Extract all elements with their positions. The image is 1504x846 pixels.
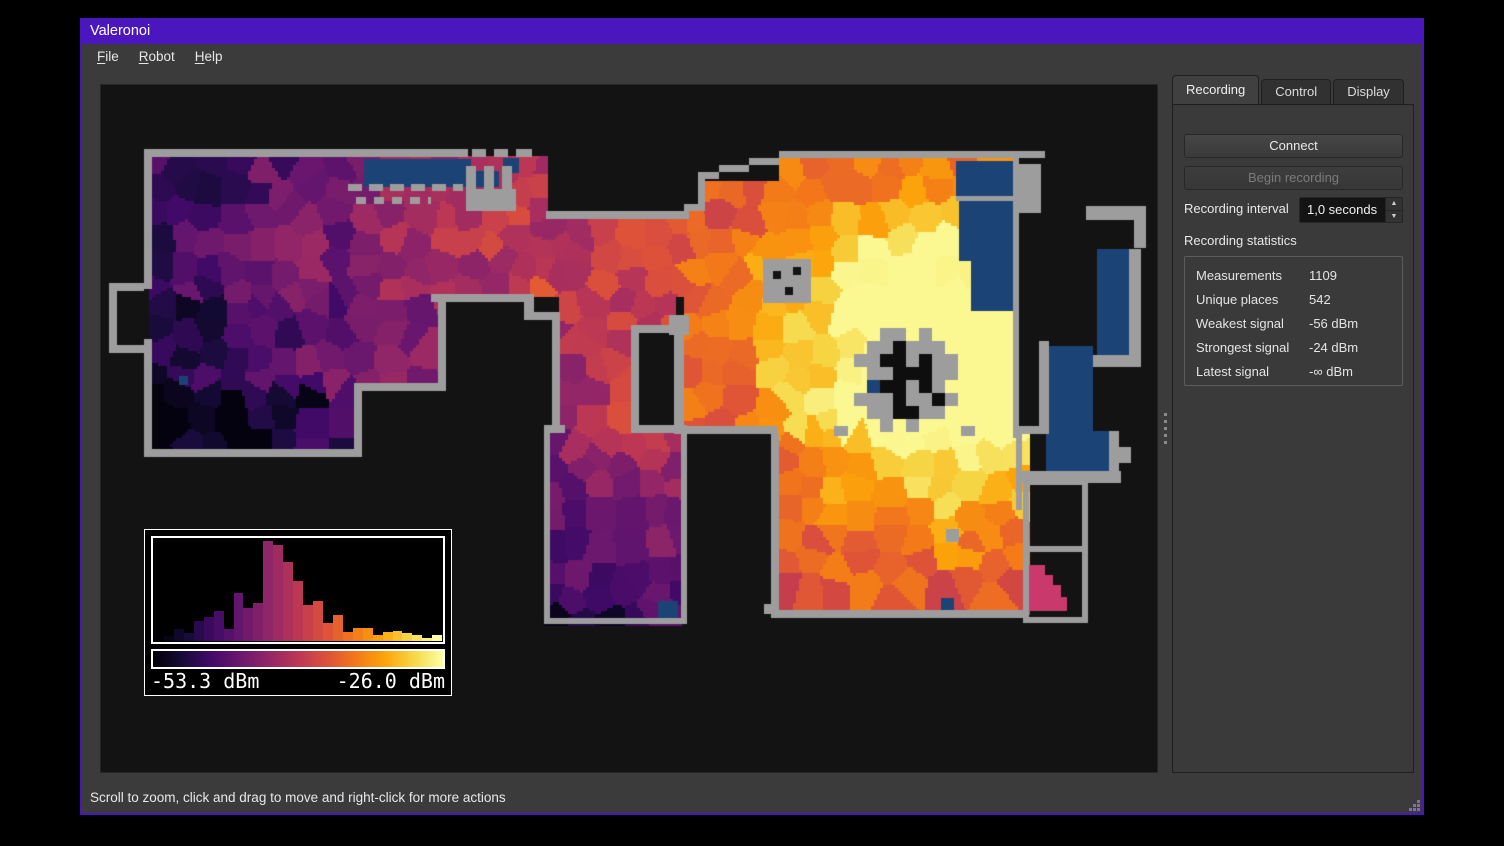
histogram-bar [353,628,363,641]
histogram-bar [303,605,313,641]
status-bar-text: Scroll to zoom, click and drag to move a… [90,790,506,805]
stat-value: -56 dBm [1309,316,1358,331]
histogram-bar [204,617,214,641]
stat-row: Unique places542 [1196,287,1402,311]
recording-interval-value: 1,0 seconds [1300,198,1385,222]
histogram-bar [243,608,253,641]
legend-min-label: -53.3 dBm [151,669,259,693]
stat-label: Measurements [1196,268,1309,283]
tab-recording[interactable]: Recording [1172,75,1259,104]
histogram-bar [422,638,432,641]
stat-row: Measurements1109 [1196,263,1402,287]
begin-recording-button[interactable]: Begin recording [1184,166,1403,190]
histogram-bar [283,562,293,641]
tab-control[interactable]: Control [1261,79,1331,104]
stat-value: 542 [1309,292,1331,307]
histogram-bar [273,545,283,641]
histogram-bar [293,581,303,641]
histogram-bar [184,633,194,641]
histogram-bar [333,615,343,641]
menu-item-help[interactable]: Help [186,46,232,67]
spin-buttons: ▲ ▼ [1385,198,1402,222]
histogram-bar [154,631,164,641]
tab-display[interactable]: Display [1333,79,1404,104]
recording-interval-row: Recording interval 1,0 seconds ▲ ▼ [1184,197,1403,223]
panel-tab-bar: RecordingControlDisplay [1172,79,1406,104]
legend-max-label: -26.0 dBm [337,669,445,693]
histogram-bar [393,631,403,641]
stat-row: Latest signal-∞ dBm [1196,359,1402,383]
spin-down-button[interactable]: ▼ [1386,211,1402,223]
stat-label: Latest signal [1196,364,1309,379]
status-bar: Scroll to zoom, click and drag to move a… [82,786,1422,811]
histogram-bar [343,632,353,641]
histogram-bar [402,633,412,641]
app-window: Valeronoi FileRobotHelp -53.3 dBm -26.0 … [80,18,1424,815]
menu-item-file[interactable]: File [88,46,128,67]
histogram-bar [373,635,383,641]
recording-statistics-frame: Measurements1109Unique places542Weakest … [1184,256,1403,386]
menu-bar: FileRobotHelp [82,44,1422,69]
stat-label: Unique places [1196,292,1309,307]
menu-item-robot[interactable]: Robot [130,46,184,67]
colormap-gradient-frame [151,649,445,669]
splitter-handle[interactable] [1158,84,1172,773]
recording-interval-label: Recording interval [1184,201,1289,216]
resize-grip-icon[interactable] [1406,797,1420,811]
recording-statistics-title: Recording statistics [1184,233,1297,248]
spin-up-button[interactable]: ▲ [1386,198,1402,211]
colormap-gradient [153,651,443,667]
histogram-bar [313,601,323,641]
stat-row: Strongest signal-24 dBm [1196,335,1402,359]
legend-labels: -53.3 dBm -26.0 dBm [151,669,445,693]
histogram-bar [323,623,333,641]
signal-histogram [151,536,445,644]
histogram-bar [412,635,422,641]
histogram-bar [363,628,373,641]
window-title: Valeronoi [90,23,150,39]
recording-interval-spinbox[interactable]: 1,0 seconds ▲ ▼ [1299,197,1403,223]
stat-value: -24 dBm [1309,340,1358,355]
stat-value: 1109 [1309,268,1337,283]
stat-label: Strongest signal [1196,340,1309,355]
histogram-bar [432,635,442,641]
stat-row: Weakest signal-56 dBm [1196,311,1402,335]
histogram-bar [214,611,224,641]
histogram-bar [253,603,263,641]
histogram-bar [194,621,204,641]
recording-panel: Connect Begin recording Recording interv… [1172,104,1414,773]
histogram-bar [174,629,184,641]
signal-legend: -53.3 dBm -26.0 dBm [144,529,452,696]
histogram-bar [224,629,234,641]
histogram-bar [383,632,393,641]
connect-button[interactable]: Connect [1184,134,1403,158]
histogram-bar [164,636,174,641]
stat-value: -∞ dBm [1309,364,1353,379]
map-view[interactable]: -53.3 dBm -26.0 dBm [100,84,1158,773]
stat-label: Weakest signal [1196,316,1309,331]
histogram-bar [234,593,244,641]
title-bar[interactable]: Valeronoi [82,20,1422,44]
histogram-bar [263,541,273,641]
